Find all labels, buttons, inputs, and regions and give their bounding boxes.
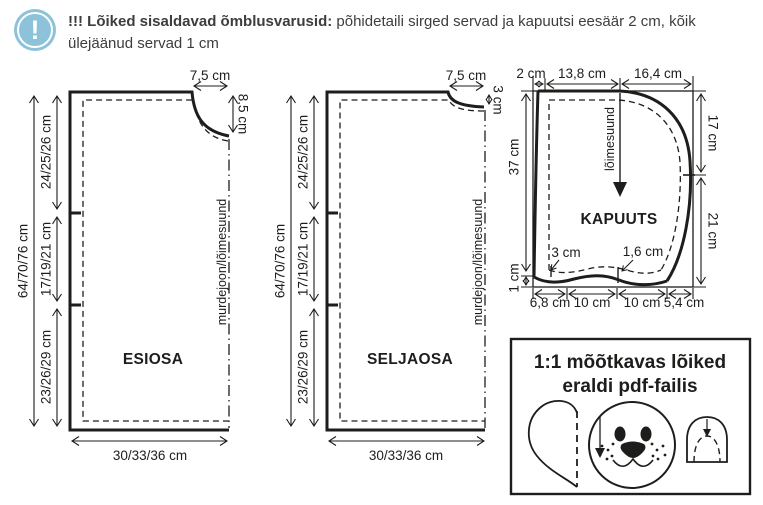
seljaosa-seam-line	[340, 100, 485, 421]
kapuuts-bottom2-label: 10 cm	[574, 295, 611, 310]
kapuuts-bottom3-label: 10 cm	[624, 295, 661, 310]
esiosa-outline	[70, 92, 229, 430]
seljaosa-neck-width-label: 7,5 cm	[446, 68, 487, 83]
seljaosa-total-height-label: 64/70/76 cm	[273, 224, 288, 298]
kapuuts-hem-label: 1 cm	[507, 263, 522, 292]
kapuuts-top-right-label: 16,4 cm	[634, 66, 682, 81]
seal-left-eye	[615, 427, 626, 442]
face-grain-arrow-head	[595, 448, 605, 458]
seal-mouth	[613, 459, 653, 466]
kapuuts-corner-label: 3 cm	[551, 245, 580, 260]
kapuuts-top-seam-label: 2 cm	[516, 66, 545, 81]
seljaosa-fold-grain-label: murdejoon/lõimesuund	[471, 199, 485, 326]
seal-right-eye	[641, 427, 652, 442]
esiosa-notch-marks	[70, 213, 81, 305]
esiosa-seam-line	[83, 100, 229, 421]
esiosa-total-height-label: 64/70/76 cm	[16, 224, 31, 298]
kapuuts-corner-pointer	[551, 260, 559, 270]
kapuuts-bottom1-label: 6,8 cm	[530, 295, 571, 310]
seljaosa-section-top-label: 24/25/26 cm	[296, 115, 311, 189]
kapuuts-top-middle-label: 13,8 cm	[558, 66, 606, 81]
kapuuts-right-upper-label: 17 cm	[706, 115, 721, 152]
info-box-line1: 1:1 mõõtkavas lõiked	[534, 352, 726, 373]
seljaosa-neck-depth-label: 3 cm	[491, 85, 506, 114]
kapuuts-right-lower-label: 21 cm	[706, 213, 721, 250]
esiosa-neck-width-label: 7,5 cm	[190, 68, 231, 83]
pattern-diagram: 64/70/76 cm 24/25/26 cm 17/19/21 cm 23/2…	[0, 0, 763, 505]
seljaosa-width-label: 30/33/36 cm	[369, 448, 443, 463]
kapuuts-name-label: KAPUUTS	[580, 211, 657, 228]
seal-nose	[621, 442, 646, 459]
kapuuts-dip-label: 1,6 cm	[623, 244, 664, 259]
kapuuts-grain-label: lõimesuund	[603, 107, 617, 171]
seljaosa-section-bottom-label: 23/26/29 cm	[296, 330, 311, 404]
info-box-line2: eraldi pdf-failis	[562, 376, 697, 397]
seljaosa-outline	[327, 92, 485, 430]
kapuuts-bottom4-label: 5,4 cm	[664, 295, 705, 310]
esiosa-section-top-label: 24/25/26 cm	[39, 115, 54, 189]
heart-half-illustration	[529, 401, 577, 487]
esiosa-section-middle-label: 17/19/21 cm	[39, 222, 54, 296]
kapuuts-dip-pointer	[622, 260, 633, 271]
esiosa-pattern: 64/70/76 cm 24/25/26 cm 17/19/21 cm 23/2…	[16, 68, 251, 463]
sewing-pattern-sheet: ! !!! Lõiked sisaldavad õmblusvarusid: p…	[0, 0, 763, 505]
seal-face-illustration	[589, 402, 675, 488]
seljaosa-name-label: SELJAOSA	[367, 351, 453, 368]
esiosa-fold-grain-label: murdejoon/lõimesuund	[215, 199, 229, 326]
grain-arrow-head	[613, 182, 627, 197]
kapuuts-left-height-label: 37 cm	[507, 139, 522, 176]
esiosa-name-label: ESIOSA	[123, 351, 183, 368]
kapuuts-pattern: 2 cm 13,8 cm 16,4 cm 37 cm 1 cm 17 cm 21…	[507, 66, 721, 310]
esiosa-neck-depth-label: 8,5 cm	[236, 94, 251, 135]
scale-info-box: 1:1 mõõtkavas lõiked eraldi pdf-failis	[511, 339, 750, 494]
seljaosa-section-middle-label: 17/19/21 cm	[296, 222, 311, 296]
seljaosa-notch-marks	[327, 213, 338, 305]
esiosa-section-bottom-label: 23/26/29 cm	[39, 330, 54, 404]
ear-piece-illustration	[687, 417, 727, 462]
seljaosa-pattern: 64/70/76 cm 24/25/26 cm 17/19/21 cm 23/2…	[273, 68, 506, 463]
esiosa-width-label: 30/33/36 cm	[113, 448, 187, 463]
